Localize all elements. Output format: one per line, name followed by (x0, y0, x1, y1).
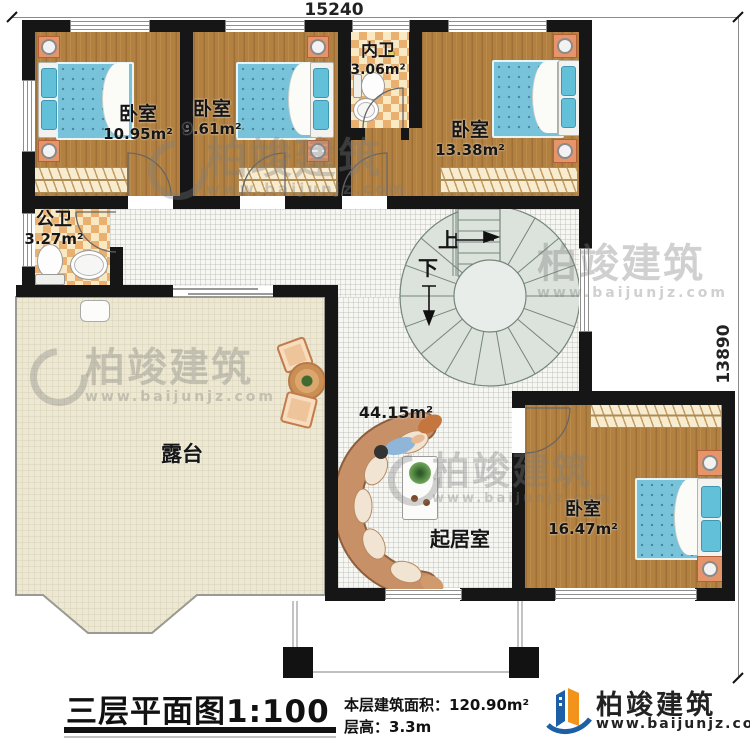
brand-logo-icon (546, 681, 592, 735)
brand-url: www.baijunjz.com (596, 716, 750, 732)
plan-title: 三层平面图1:100 (66, 686, 330, 731)
plan-title-text: 三层平面图 (66, 694, 226, 730)
floor-area-label: 本层建筑面积： (344, 696, 449, 714)
floor-height-label: 层高： (344, 718, 389, 736)
title-underline-thick (64, 727, 336, 733)
floor-area-line: 本层建筑面积：120.90m² (344, 694, 529, 715)
door-arcs (76, 88, 570, 453)
floor-height-value: 3.3m (389, 718, 431, 736)
floor-area-value: 120.90m² (449, 696, 529, 714)
floor-height-line: 层高：3.3m (344, 716, 431, 737)
porch-lines (293, 601, 522, 672)
dimension-ticks (7, 12, 743, 683)
title-underline-thin (64, 736, 336, 738)
stair-down-label: 下 (418, 252, 438, 281)
plan-scale: 1:100 (226, 694, 330, 730)
stair-up-label: 上 (438, 224, 458, 253)
floorplan-canvas: 15240 13890 (0, 0, 750, 746)
plan-overlay (0, 0, 750, 746)
